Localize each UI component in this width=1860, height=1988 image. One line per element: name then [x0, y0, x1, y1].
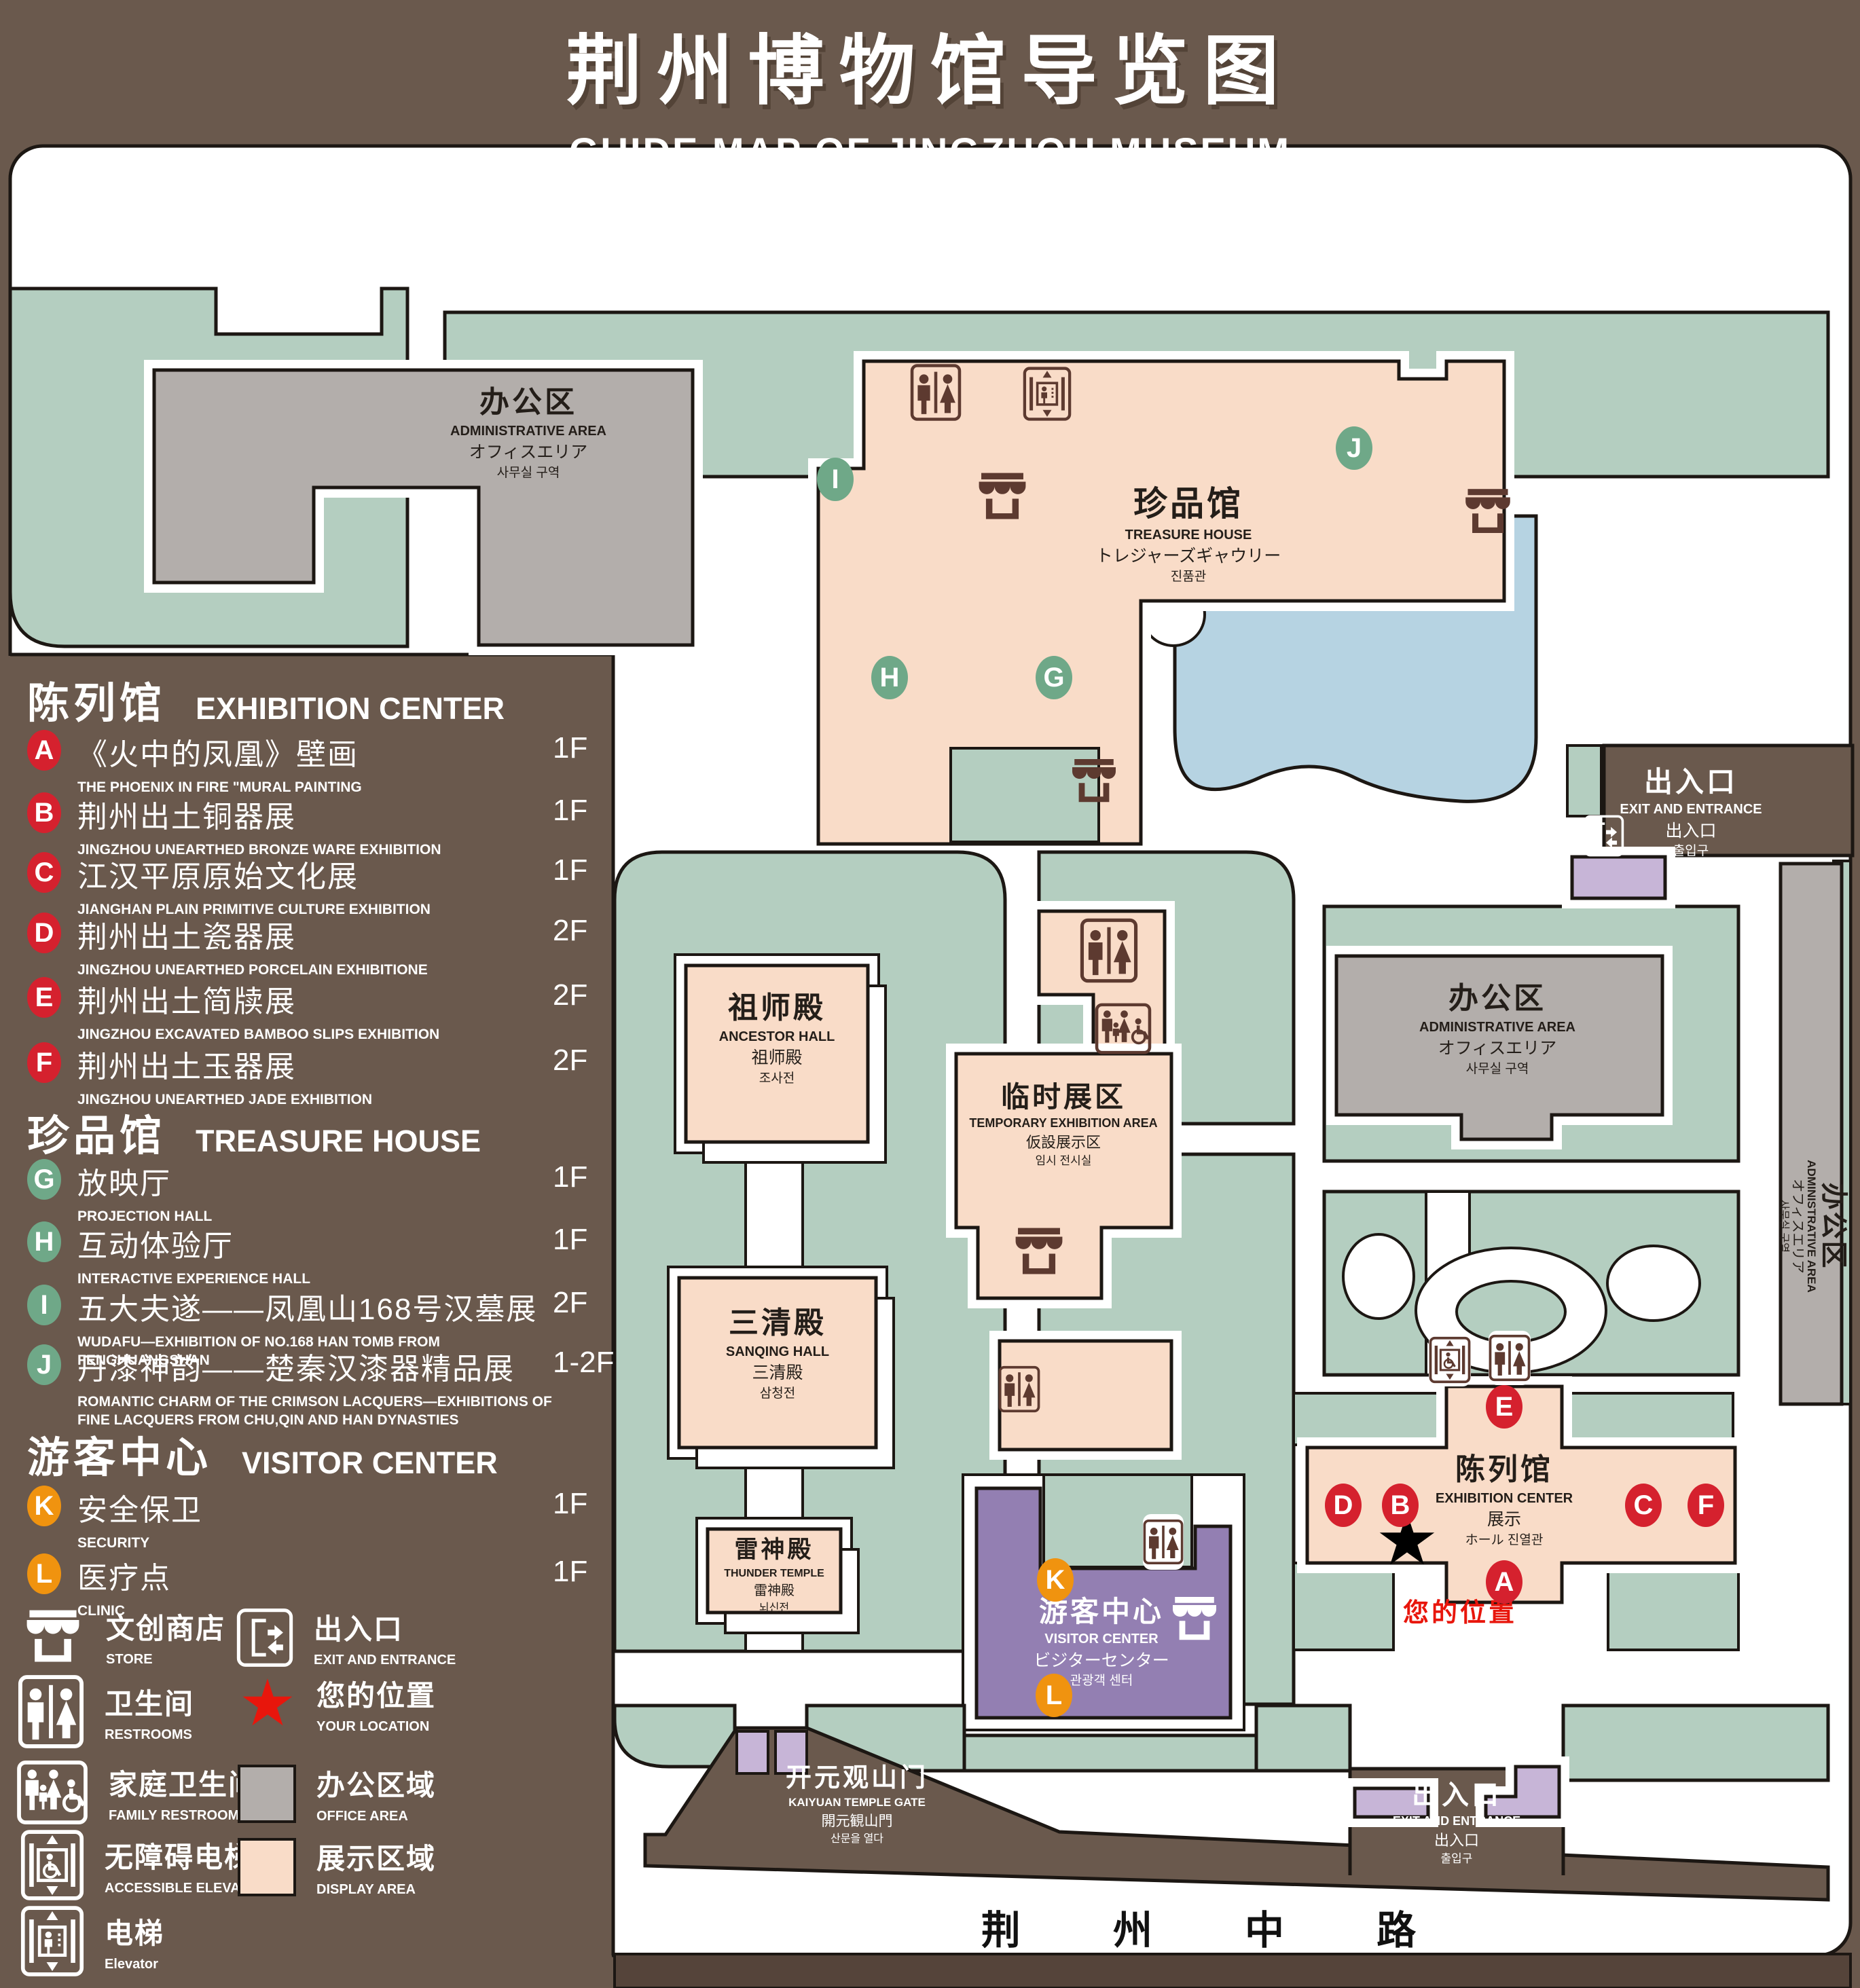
display-area-swatch	[238, 1838, 296, 1896]
label-road: 荆 州 中 路	[981, 1898, 1457, 1955]
header-zh: 陈列馆	[27, 669, 166, 730]
page-title: 荆州博物馆导览图 GUIDE MAP OF JINGZHOU MUSEUM	[0, 10, 1860, 173]
lbl-jp: 開元観山門	[786, 1813, 928, 1830]
lbl-zh: 办公区	[450, 384, 606, 421]
lbl-kr: 조사전	[719, 1071, 835, 1086]
lbl-zh: 出入口	[1393, 1779, 1520, 1812]
item-floor: 1-2F	[553, 1344, 634, 1380]
map-badge-j: J	[1336, 426, 1372, 470]
legend-item-e: E 荆州出土简牍展JINGZHOU EXCAVATED BAMBOO SLIPS…	[27, 977, 679, 1044]
item-zh: 荆州出土铜器展	[77, 792, 553, 836]
label-kaiyuan-gate: 开元观山门 KAIYUAN TEMPLE GATE 開元観山門 산문을 열다	[786, 1763, 928, 1845]
office-area-swatch	[238, 1765, 296, 1823]
lbl-en: TEMPORARY EXHIBITION AREA	[969, 1116, 1157, 1131]
lbl-jp: 祖师殿	[719, 1048, 835, 1069]
legend-header-exhibition-center: 陈列馆 EXHIBITION CENTER	[27, 669, 505, 730]
lbl-kr: 사무실 구역	[1777, 989, 1789, 1464]
title-zh: 荆州博物馆导览图	[0, 10, 1860, 119]
exit-entrance-icon	[236, 1608, 293, 1668]
lbl-zh: 出入口	[1620, 765, 1762, 799]
item-floor: 1F	[553, 852, 634, 887]
lbl-en: EXIT AND ENTRANCE	[1620, 801, 1762, 817]
lbl-kr: 산문을 열다	[786, 1833, 928, 1846]
lbl-en: VISITOR CENTER	[1034, 1631, 1169, 1647]
lbl-kr: ホール 진열관	[1436, 1532, 1573, 1548]
badge-e: E	[27, 977, 61, 1018]
lbl-en: TREASURE HOUSE	[1096, 527, 1281, 543]
legend-item-j: J 丹漆神韵——楚秦汉漆器精品展ROMANTIC CHARM OF THE CR…	[27, 1344, 679, 1430]
map-badge-i: I	[817, 458, 854, 501]
legend-symbol-your-location: ★ 您的位置YOUR LOCATION	[239, 1672, 436, 1736]
item-floor: 1F	[553, 1486, 634, 1521]
legend-symbol-office-area: 办公区域OFFICE AREA	[238, 1763, 436, 1824]
item-zh: 丹漆神韵——楚秦汉漆器精品展	[77, 1344, 553, 1388]
lbl-kr: 뇌신전	[724, 1602, 824, 1615]
header-zh: 游客中心	[27, 1423, 212, 1484]
map-badge-a: A	[1486, 1560, 1522, 1604]
item-en: JINGZHOU EXCAVATED BAMBOO SLIPS EXHIBITI…	[77, 1025, 553, 1044]
lbl-kr: 삼청전	[726, 1386, 829, 1401]
lbl-kr: 사무실 구역	[450, 465, 606, 481]
legend-symbol-elevator: 电梯Elevator	[20, 1905, 164, 1977]
item-zh: 五大夫遂——凤凰山168号汉墓展	[77, 1285, 553, 1328]
legend-item-c: C 江汉平原原始文化展JIANGHAN PLAIN PRIMITIVE CULT…	[27, 852, 679, 919]
item-floor: 2F	[553, 1042, 634, 1078]
lbl-jp: オフィスエリア	[1789, 989, 1805, 1464]
legend-symbol-display-area: 展示区域DISPLAY AREA	[238, 1836, 436, 1898]
header-zh: 珍品馆	[27, 1101, 166, 1162]
lbl-jp: 三清殿	[726, 1363, 829, 1384]
restrooms-icon	[18, 1674, 84, 1749]
badge-d: D	[27, 913, 61, 953]
legend-symbol-exit: 出入口EXIT AND ENTRANCE	[236, 1606, 456, 1668]
accessible-elevator-icon	[20, 1829, 84, 1901]
label-thunder-temple: 雷神殿 THUNDER TEMPLE 雷神殿 뇌신전	[724, 1536, 824, 1615]
badge-l: L	[27, 1553, 61, 1594]
symbol-zh: 展示区域	[316, 1836, 436, 1877]
label-admin-area-right: 办公区 ADMINISTRATIVE AREA オフィスエリア 사무실 구역	[1419, 980, 1575, 1077]
family-restrooms-icon	[16, 1760, 88, 1825]
store-icon	[1167, 1591, 1222, 1646]
symbol-zh: 文创商店	[106, 1606, 225, 1647]
map-badge-k: K	[1037, 1558, 1074, 1602]
lbl-zh: 临时展区	[969, 1080, 1157, 1114]
lbl-jp: オフィスエリア	[450, 442, 606, 463]
store-icon	[1010, 1222, 1068, 1281]
item-floor: 1F	[553, 730, 634, 765]
symbol-zh: 电梯	[105, 1911, 164, 1952]
lbl-zh: 办公区	[1419, 980, 1575, 1017]
lbl-jp: 出入口	[1393, 1832, 1520, 1850]
symbol-en: FAMILY RESTROOMS	[109, 1808, 258, 1824]
lbl-en: SANQING HALL	[726, 1344, 829, 1360]
lbl-jp: ビジターセンター	[1034, 1651, 1169, 1672]
label-treasure-house: 珍品馆 TREASURE HOUSE トレジャーズギャウリー 진품관	[1096, 483, 1281, 585]
family-restrooms-icon	[1095, 1002, 1152, 1055]
item-zh: 《火中的凤凰》壁画	[77, 730, 553, 773]
legend-item-k: K 安全保卫SECURITY 1F	[27, 1486, 679, 1552]
item-zh: 荆州出土简牍展	[77, 977, 553, 1020]
lbl-en: KAIYUAN TEMPLE GATE	[786, 1796, 928, 1810]
symbol-en: STORE	[106, 1652, 225, 1668]
lbl-kr: 출입구	[1620, 843, 1762, 859]
item-zh: 互动体验厅	[77, 1221, 553, 1265]
lbl-en: ADMINISTRATIVE AREA	[1419, 1019, 1575, 1035]
symbol-en: RESTROOMS	[105, 1727, 194, 1743]
map-badge-h: H	[871, 656, 908, 699]
map-badge-f: F	[1688, 1484, 1724, 1527]
symbol-zh: 您的位置	[316, 1673, 436, 1714]
legend-symbol-restrooms: 卫生间RESTROOMS	[18, 1674, 194, 1749]
restrooms-icon	[1143, 1514, 1184, 1570]
lbl-jp: 展示	[1436, 1509, 1573, 1530]
legend-header-visitor-center: 游客中心 VISITOR CENTER	[27, 1423, 498, 1484]
label-temporary-exhibition: 临时展区 TEMPORARY EXHIBITION AREA 仮設展示区 임시 …	[969, 1080, 1157, 1168]
item-zh: 安全保卫	[77, 1486, 553, 1529]
label-admin-area-left: 办公区 ADMINISTRATIVE AREA オフィスエリア 사무실 구역	[450, 384, 606, 481]
item-zh: 放映厅	[77, 1159, 553, 1202]
label-exhibition-center: 陈列馆 EXHIBITION CENTER 展示 ホール 진열관	[1436, 1452, 1573, 1548]
badge-g: G	[27, 1159, 61, 1200]
symbol-zh: 家庭卫生间	[109, 1762, 258, 1803]
symbol-en: OFFICE AREA	[316, 1809, 436, 1824]
badge-k: K	[27, 1486, 61, 1526]
label-exit-top: 出入口 EXIT AND ENTRANCE 出入口 출입구	[1620, 765, 1762, 859]
restrooms-icon	[998, 1361, 1040, 1418]
lbl-zh: 珍品馆	[1096, 483, 1281, 525]
lbl-zh: 开元观山门	[786, 1763, 928, 1794]
lbl-zh: 雷神殿	[724, 1536, 824, 1565]
lbl-en: EXHIBITION CENTER	[1436, 1490, 1573, 1507]
restrooms-icon	[1080, 917, 1138, 984]
legend-item-h: H 互动体验厅INTERACTIVE EXPERIENCE HALL 1F	[27, 1221, 679, 1288]
symbol-zh: 办公区域	[316, 1763, 436, 1804]
item-floor: 1F	[553, 1553, 634, 1589]
lbl-jp: 出入口	[1620, 821, 1762, 842]
badge-b: B	[27, 792, 61, 833]
symbol-en: Elevator	[105, 1957, 164, 1972]
lbl-en: EXIT AND ENTRANCE	[1393, 1814, 1520, 1829]
item-zh: 荆州出土玉器展	[77, 1042, 553, 1086]
restrooms-icon	[910, 363, 962, 422]
label-exit-bottom: 出入口 EXIT AND ENTRANCE 出入口 출입구	[1393, 1779, 1520, 1866]
elevator-icon	[20, 1905, 84, 1977]
legend-item-g: G 放映厅PROJECTION HALL 1F	[27, 1159, 679, 1226]
badge-c: C	[27, 852, 61, 893]
symbol-en: EXIT AND ENTRANCE	[314, 1653, 456, 1668]
lbl-en: ADMINISTRATIVE AREA	[450, 423, 606, 439]
lbl-en: ADMINISTRATIVE AREA	[1805, 989, 1819, 1464]
lbl-zh: 三清殿	[726, 1305, 829, 1342]
lbl-zh: 办公区	[1818, 989, 1849, 1464]
map-badge-d: D	[1325, 1484, 1362, 1527]
header-en: TREASURE HOUSE	[196, 1124, 481, 1162]
header-en: VISITOR CENTER	[242, 1446, 498, 1484]
item-zh: 江汉平原原始文化展	[77, 852, 553, 896]
legend-symbol-store: 文创商店STORE	[20, 1604, 225, 1669]
item-floor: 2F	[553, 977, 634, 1012]
lbl-en: ANCESTOR HALL	[719, 1029, 835, 1045]
your-location-star: ★	[239, 1672, 296, 1736]
item-floor: 1F	[553, 1221, 634, 1257]
legend-item-b: B 荆州出土铜器展JINGZHOU UNEARTHED BRONZE WARE …	[27, 792, 679, 859]
item-en: SECURITY	[77, 1534, 553, 1552]
restrooms-icon	[1489, 1331, 1531, 1385]
lbl-jp: オフィスエリア	[1419, 1038, 1575, 1059]
map-badge-e: E	[1486, 1385, 1522, 1429]
store-icon	[1460, 483, 1516, 539]
map-badge-c: C	[1625, 1484, 1662, 1527]
lbl-jp: 雷神殿	[724, 1583, 824, 1599]
legend-symbol-accessible-elevator: 无障碍电梯ACCESSIBLE ELEVATOR	[20, 1829, 268, 1901]
symbol-en: DISPLAY AREA	[316, 1882, 436, 1898]
badge-i: I	[27, 1285, 61, 1325]
item-floor: 2F	[553, 913, 634, 948]
badge-j: J	[27, 1344, 61, 1385]
title-en: GUIDE MAP OF JINGZHOU MUSEUM	[0, 129, 1860, 173]
lbl-kr: 진품관	[1096, 569, 1281, 585]
lbl-jp: トレジャーズギャウリー	[1096, 546, 1281, 567]
header-en: EXHIBITION CENTER	[196, 691, 505, 730]
badge-h: H	[27, 1221, 61, 1262]
lbl-kr: 임시 전시실	[969, 1154, 1157, 1168]
guide-map-page: 荆州博物馆导览图 GUIDE MAP OF JINGZHOU MUSEUM 陈列…	[0, 0, 1860, 1988]
item-zh: 医疗点	[77, 1553, 553, 1597]
map-badge-g: G	[1036, 656, 1072, 699]
store-icon	[1067, 754, 1121, 808]
item-floor: 1F	[553, 792, 634, 828]
legend-item-d: D 荆州出土瓷器展JINGZHOU UNEARTHED PORCELAIN EX…	[27, 913, 679, 979]
accessible-elevator-icon	[1429, 1333, 1471, 1386]
elevator-icon	[1023, 364, 1072, 424]
symbol-en: YOUR LOCATION	[316, 1719, 436, 1735]
lbl-kr: 사무실 구역	[1419, 1061, 1575, 1077]
map-badge-b: B	[1382, 1484, 1419, 1527]
legend-symbol-family-restrooms: 家庭卫生间FAMILY RESTROOMS	[16, 1760, 258, 1825]
item-floor: 2F	[553, 1285, 634, 1320]
item-floor: 1F	[553, 1159, 634, 1194]
exit-entrance-icon	[1584, 815, 1624, 857]
lbl-en: THUNDER TEMPLE	[724, 1567, 824, 1581]
label-sanqing-hall: 三清殿 SANQING HALL 三清殿 삼청전	[726, 1305, 829, 1401]
store-icon	[20, 1604, 86, 1669]
lbl-kr: 출입구	[1393, 1852, 1520, 1866]
label-admin-strip: 办公区 ADMINISTRATIVE AREA オフィスエリア 사무실 구역	[1782, 989, 1844, 1464]
badge-a: A	[27, 730, 61, 771]
symbol-zh: 出入口	[314, 1606, 456, 1648]
map-badge-l: L	[1036, 1674, 1072, 1717]
legend-item-a: A 《火中的凤凰》壁画THE PHOENIX IN FIRE "MURAL PA…	[27, 730, 679, 796]
badge-f: F	[27, 1042, 61, 1083]
store-icon	[973, 467, 1032, 526]
label-ancestor-hall: 祖师殿 ANCESTOR HALL 祖师殿 조사전	[719, 990, 835, 1086]
legend-item-f: F 荆州出土玉器展JINGZHOU UNEARTHED JADE EXHIBIT…	[27, 1042, 679, 1109]
item-zh: 荆州出土瓷器展	[77, 913, 553, 956]
symbol-zh: 卫生间	[105, 1681, 194, 1723]
lbl-jp: 仮設展示区	[969, 1134, 1157, 1152]
lbl-zh: 祖师殿	[719, 990, 835, 1027]
legend-header-treasure-house: 珍品馆 TREASURE HOUSE	[27, 1101, 481, 1162]
lbl-zh: 陈列馆	[1436, 1452, 1573, 1488]
